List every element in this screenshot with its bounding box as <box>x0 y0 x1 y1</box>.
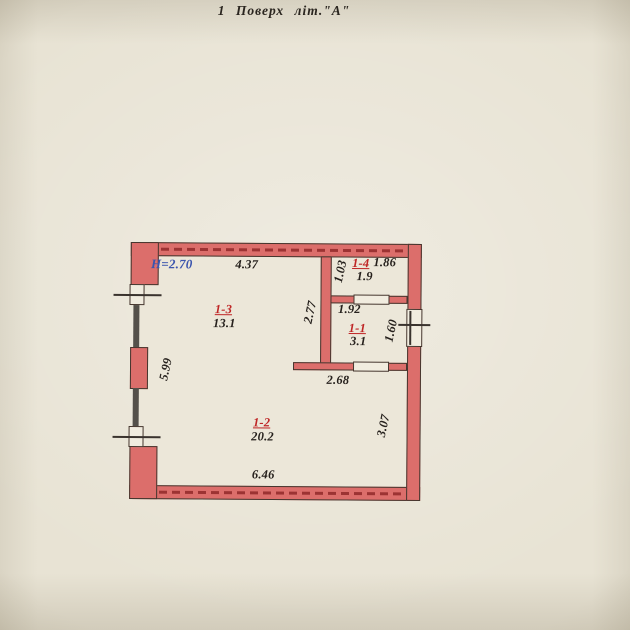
door-gap-room-1-1 <box>353 362 389 372</box>
wall-left-bottom-block <box>129 446 157 499</box>
scanned-page: 1 Поверх літ."А" Н=2 <box>0 0 630 630</box>
room-area-1-2: 20.2 <box>251 429 274 444</box>
height-note: Н=2.70 <box>151 256 193 272</box>
wall-left-thin-upper <box>133 304 139 348</box>
room-label-1-2: 1-2 <box>253 415 270 430</box>
wall-bottom <box>129 485 420 501</box>
wall-top-hatch <box>135 248 418 253</box>
wall-right <box>406 244 422 501</box>
dim-room-1-1-width: 1.92 <box>338 302 361 317</box>
wall-interior-vertical <box>320 256 332 370</box>
room-area-1-4: 1.9 <box>356 269 372 284</box>
dimension-tick-window-upper <box>114 294 162 296</box>
wall-below-1-1 <box>293 362 407 371</box>
room-area-1-1: 3.1 <box>350 334 366 349</box>
wall-left-pier <box>130 347 148 389</box>
dim-top-width: 4.37 <box>235 257 258 272</box>
dimension-tick-window-lower <box>113 436 161 438</box>
wall-left-thin-lower <box>133 388 139 427</box>
room-label-1-3: 1-3 <box>215 302 232 317</box>
dim-room-1-4-width: 1.86 <box>373 255 396 270</box>
dim-hall-width: 2.68 <box>327 373 350 388</box>
dimension-tick-entry <box>398 324 430 326</box>
dim-bottom-width: 6.46 <box>252 467 275 482</box>
wall-bottom-hatch <box>133 491 416 496</box>
entry-door-frame-line <box>409 311 411 345</box>
floor-plan: Н=2.70 4.37 1.03 1.86 2.77 1.92 1.60 5.9… <box>0 0 630 632</box>
room-area-1-3: 13.1 <box>213 316 236 331</box>
